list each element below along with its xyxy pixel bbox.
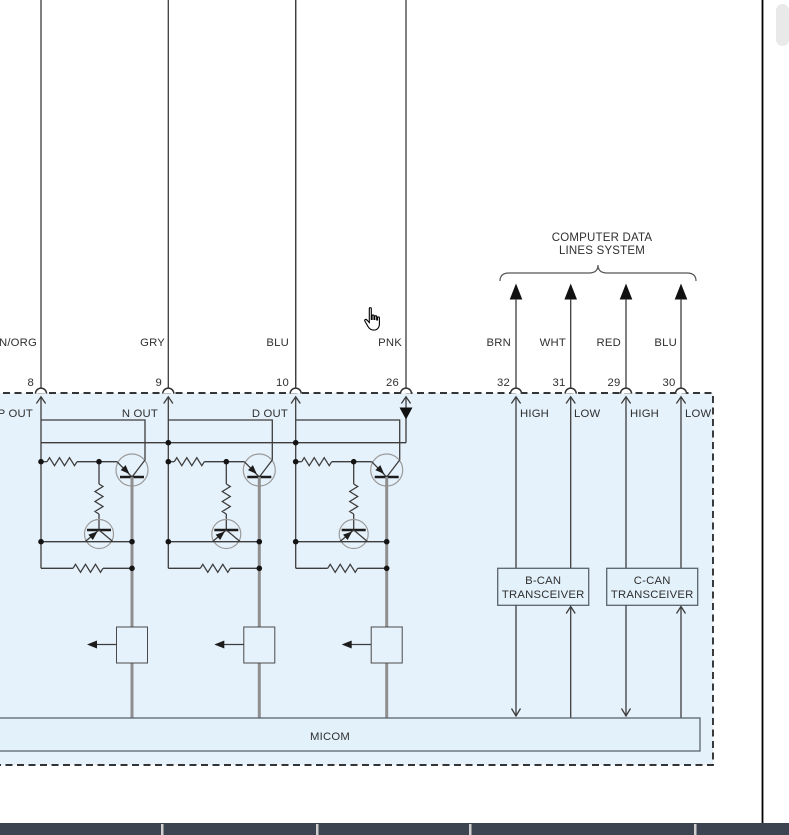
up-arrow-icon bbox=[564, 284, 577, 300]
terminal-label: LOW bbox=[574, 408, 600, 420]
micom-label: MICOM bbox=[310, 731, 350, 743]
wire-color-label: RED bbox=[597, 337, 621, 349]
connector-pin-icon bbox=[401, 388, 412, 394]
pin-number: 32 bbox=[497, 377, 510, 389]
wiring-diagram-canvas: COMPUTER DATA LINES SYSTEM N/ORG GRY BLU… bbox=[0, 0, 789, 835]
wiring-diagram-viewer: COMPUTER DATA LINES SYSTEM N/ORG GRY BLU… bbox=[0, 0, 789, 835]
wire-color-label: PNK bbox=[378, 337, 402, 349]
wire-color-label: BRN bbox=[487, 337, 511, 349]
terminal-label: LOW bbox=[685, 408, 711, 420]
column-separator bbox=[694, 824, 697, 835]
pin-number: 30 bbox=[663, 377, 676, 389]
computer-data-lines-title-line2: LINES SYSTEM bbox=[559, 245, 645, 257]
terminal-label: N OUT bbox=[122, 408, 158, 420]
pin-number: 9 bbox=[156, 377, 162, 389]
connector-pin-icon bbox=[565, 388, 576, 394]
connector-pin-icon bbox=[511, 388, 522, 394]
ccan-transceiver-label-line2: TRANSCEIVER bbox=[611, 589, 694, 601]
pin-number: 8 bbox=[28, 377, 34, 389]
connector-pin-icon bbox=[621, 388, 632, 394]
brace-icon bbox=[500, 265, 696, 281]
computer-data-lines-title-line1: COMPUTER DATA bbox=[552, 232, 653, 244]
pin-number: 26 bbox=[386, 377, 399, 389]
terminal-label: HIGH bbox=[630, 408, 659, 420]
connector-pin-icon bbox=[163, 388, 174, 394]
wire-color-label: BLU bbox=[266, 337, 289, 349]
control-module-dashed-box bbox=[0, 393, 713, 765]
up-arrow-icon bbox=[620, 284, 633, 300]
up-arrow-icon bbox=[510, 284, 523, 300]
wire-color-label: N/ORG bbox=[0, 337, 37, 349]
connector-pin-icon bbox=[676, 388, 687, 394]
connector-pin-icon bbox=[36, 388, 47, 394]
pin-number: 31 bbox=[553, 377, 566, 389]
pin-number: 29 bbox=[608, 377, 621, 389]
pin-number: 10 bbox=[276, 377, 289, 389]
hand-cursor-icon bbox=[365, 308, 380, 330]
bcan-transceiver-label-line2: TRANSCEIVER bbox=[502, 589, 585, 601]
terminal-label: P OUT bbox=[0, 408, 33, 420]
micom-box bbox=[0, 718, 700, 751]
column-separator bbox=[469, 824, 472, 835]
ccan-transceiver-label-line1: C-CAN bbox=[634, 575, 671, 587]
wire-color-label: WHT bbox=[540, 337, 566, 349]
table-header-background bbox=[0, 823, 789, 835]
bottom-table-header-bar bbox=[0, 823, 789, 835]
terminal-label: HIGH bbox=[520, 408, 549, 420]
scrollbar-thumb[interactable] bbox=[776, 4, 789, 46]
wire-color-label: BLU bbox=[654, 337, 677, 349]
wire-color-label: GRY bbox=[140, 337, 165, 349]
terminal-label: D OUT bbox=[252, 408, 288, 420]
bcan-transceiver-label-line1: B-CAN bbox=[525, 575, 561, 587]
up-arrow-icon bbox=[675, 284, 688, 300]
connector-pin-icon bbox=[290, 388, 301, 394]
column-separator bbox=[316, 824, 319, 835]
column-separator bbox=[161, 824, 164, 835]
